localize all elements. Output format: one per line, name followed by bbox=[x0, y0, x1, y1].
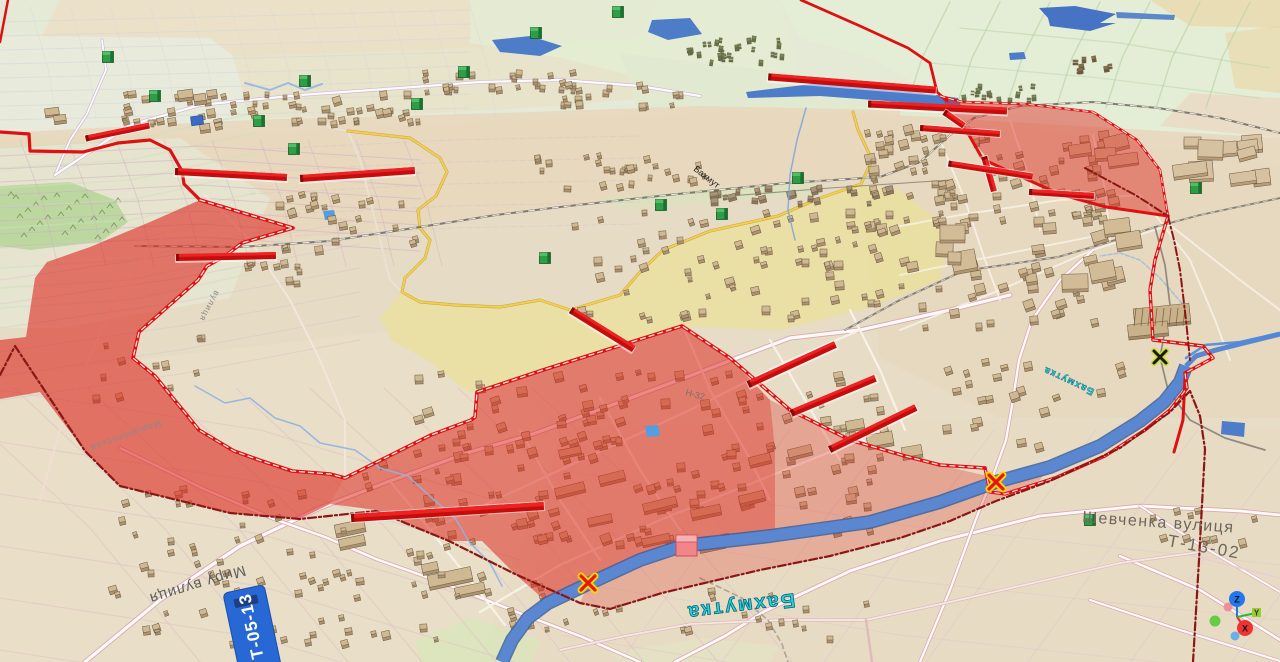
svg-text:Z: Z bbox=[1234, 595, 1240, 605]
svg-text:X: X bbox=[1242, 624, 1248, 634]
svg-text:Y: Y bbox=[1254, 609, 1260, 618]
